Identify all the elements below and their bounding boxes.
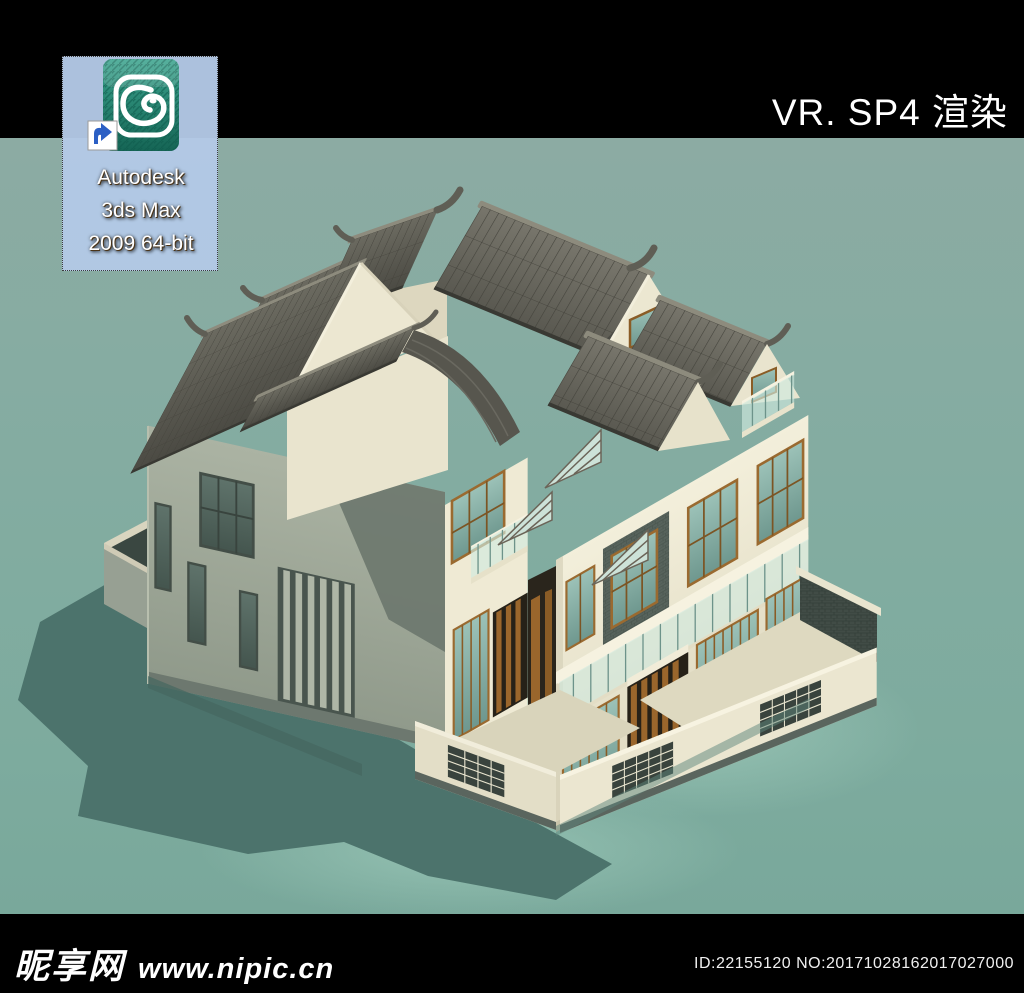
side-window-narrow xyxy=(155,503,170,590)
shortcut-label: Autodesk 3ds Max 2009 64-bit xyxy=(63,161,219,260)
autodesk-3dsmax-logo-icon xyxy=(63,57,219,161)
footer-bar: 昵享网 www.nipic.cn ID:22155120 NO:20171028… xyxy=(0,914,1024,993)
render-title-text: VR. SP4 渲染 xyxy=(772,82,1008,136)
watermark-site-url: www.nipic.cn xyxy=(138,953,334,986)
side-window-large xyxy=(201,473,254,557)
shortcut-arrow-icon xyxy=(88,121,117,150)
desktop-shortcut-3dsmax[interactable]: Autodesk 3ds Max 2009 64-bit xyxy=(62,56,218,271)
nipic-watermark: 昵享网 www.nipic.cn xyxy=(14,938,334,989)
side-window-narrow xyxy=(188,563,205,645)
screenshot-root: VR. SP4 渲染 xyxy=(0,0,1024,993)
side-window-narrow xyxy=(240,591,257,670)
image-id-text: ID:22155120 NO:20171028162017027000 xyxy=(694,955,1014,973)
watermark-site-name: 昵享网 xyxy=(14,938,125,989)
